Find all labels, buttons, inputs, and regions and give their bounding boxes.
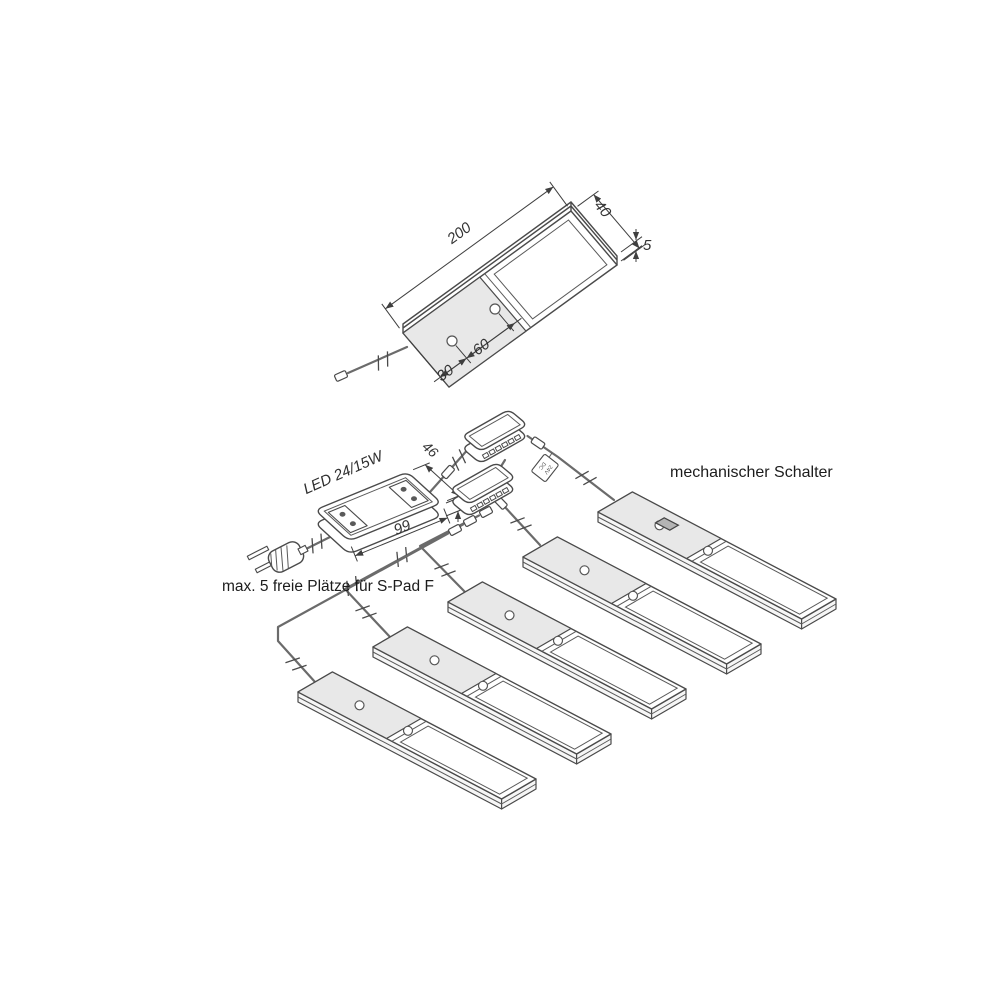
plug-pin bbox=[247, 546, 268, 560]
driver-body bbox=[318, 474, 438, 552]
dim-thickness-label: 5 bbox=[643, 237, 652, 254]
switch-label: mechanischer Schalter bbox=[670, 464, 833, 481]
dim-driver-width-label: 46 bbox=[419, 438, 441, 460]
power-plug bbox=[247, 539, 308, 575]
cable-tag: 24V DC bbox=[531, 453, 559, 482]
distributor-1 bbox=[465, 411, 525, 461]
wire-to-panel-2 bbox=[504, 506, 540, 545]
cable-break-icon bbox=[285, 653, 306, 674]
dimensioned-panel-drawing: 200 40 5 30 60 bbox=[334, 182, 652, 387]
inline-connector bbox=[441, 465, 455, 479]
panel-body bbox=[403, 202, 617, 387]
note-text: max. 5 freie Plätze für S-Pad F bbox=[222, 578, 434, 595]
plug-connector bbox=[463, 515, 477, 527]
dim-width-label: 40 bbox=[591, 197, 615, 221]
product-diagram: 200 40 5 30 60 bbox=[0, 0, 1000, 1000]
plug-connector bbox=[448, 524, 462, 536]
panel-cable bbox=[348, 347, 407, 373]
cable-connector bbox=[334, 370, 348, 381]
driver-unit: LED 24/15W 46 15 99 bbox=[247, 438, 479, 575]
dim-length-label: 200 bbox=[443, 219, 475, 248]
mounting-hole bbox=[490, 304, 500, 314]
diagram-canvas: 200 40 5 30 60 bbox=[0, 0, 1000, 1000]
mounting-hole bbox=[447, 336, 457, 346]
inline-connector bbox=[531, 436, 546, 449]
